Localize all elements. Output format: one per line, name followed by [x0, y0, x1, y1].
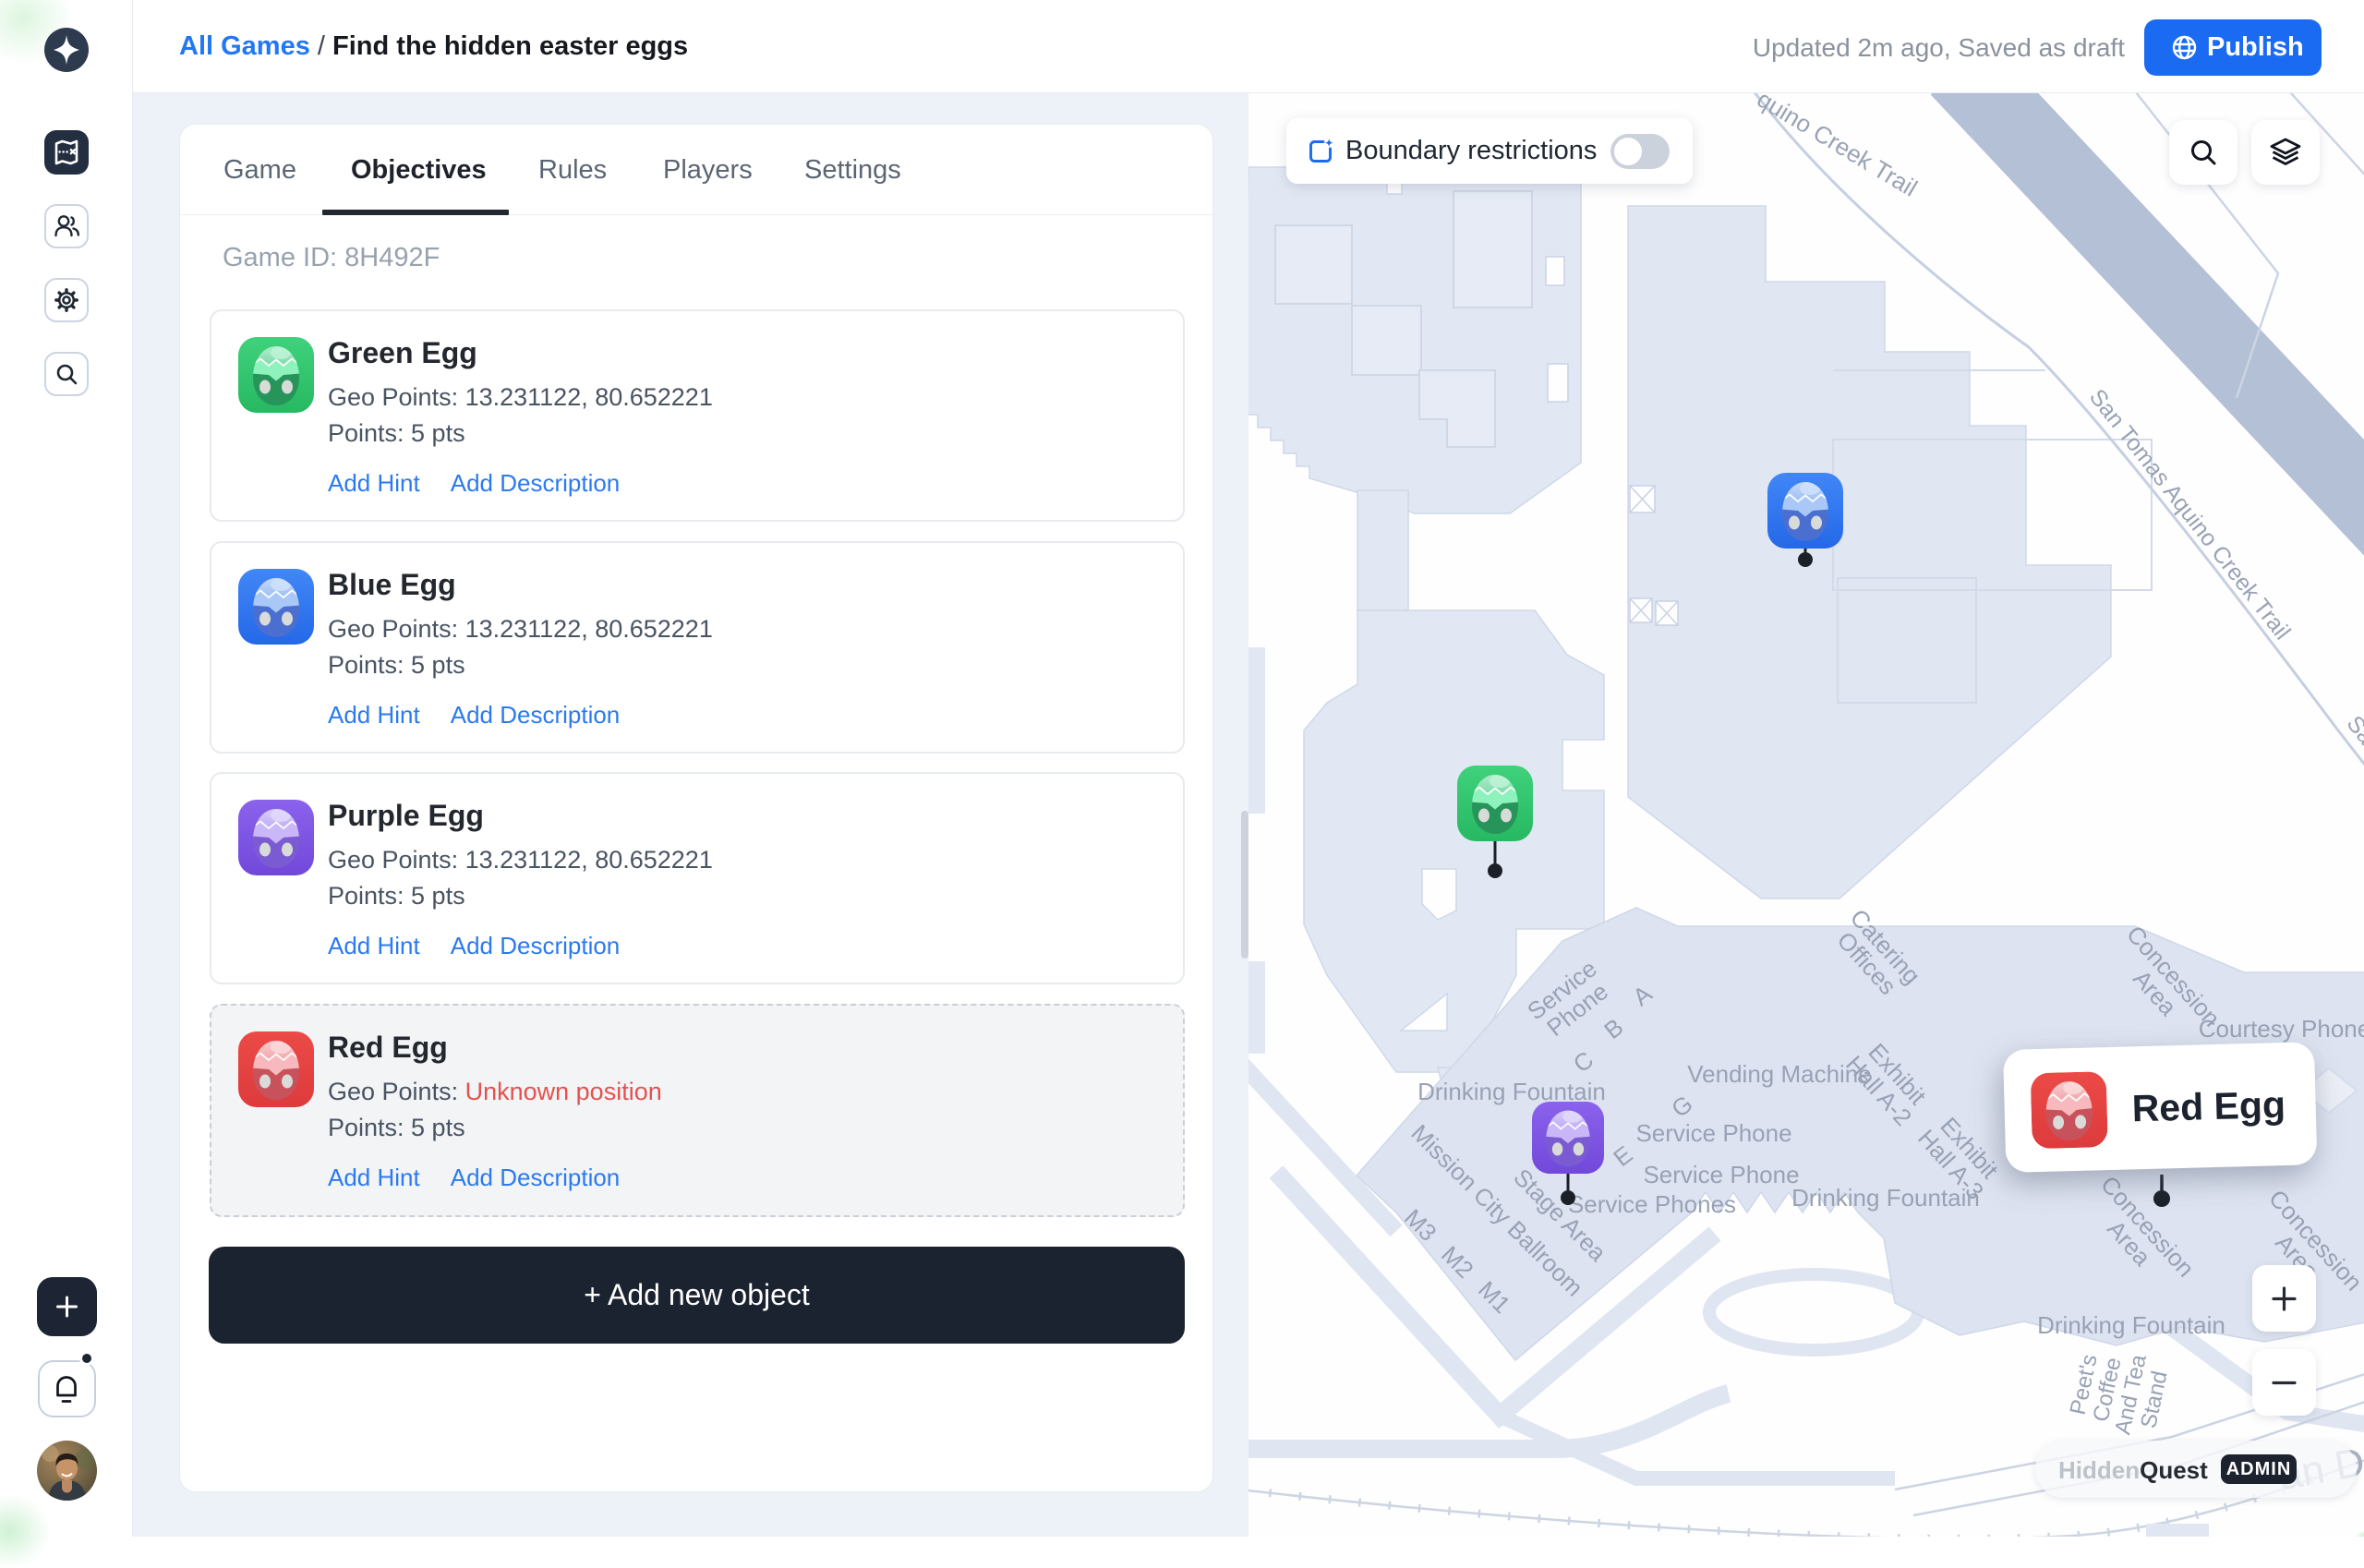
svg-text:Drinking Fountain: Drinking Fountain [1417, 1078, 1606, 1105]
svg-text:Drinking Fountain: Drinking Fountain [1791, 1184, 1980, 1212]
svg-text:Courtesy Phone: Courtesy Phone [2199, 1015, 2364, 1043]
svg-text:Service Phone: Service Phone [1635, 1119, 1791, 1147]
svg-text:Service Phone: Service Phone [1643, 1161, 1799, 1188]
svg-text:Red Egg: Red Egg [2131, 1083, 2286, 1129]
svg-text:Service Phones: Service Phones [1568, 1190, 1736, 1218]
svg-text:Drinking Fountain: Drinking Fountain [2037, 1311, 2225, 1339]
